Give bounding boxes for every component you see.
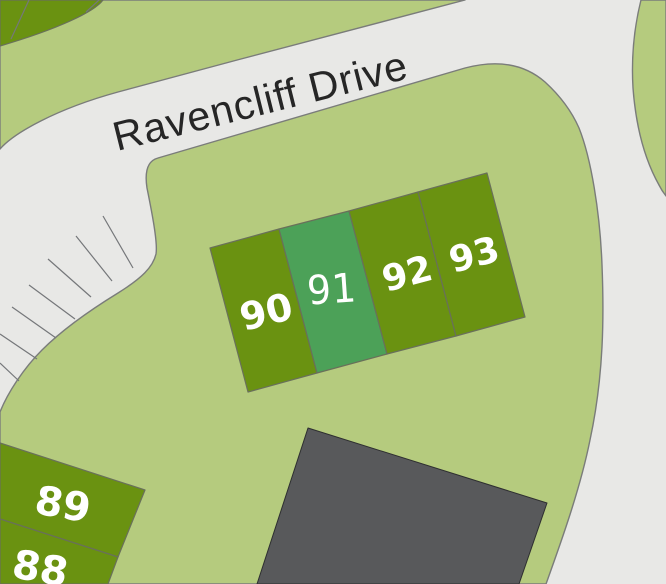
map-canvas: 90 91 92 93 89 88 Ravencliff Drive — [0, 0, 666, 584]
plot-91-label: 91 — [305, 265, 356, 314]
site-plan-map: 90 91 92 93 89 88 Ravencliff Drive — [0, 0, 666, 584]
plot-89-label: 89 — [31, 478, 94, 533]
